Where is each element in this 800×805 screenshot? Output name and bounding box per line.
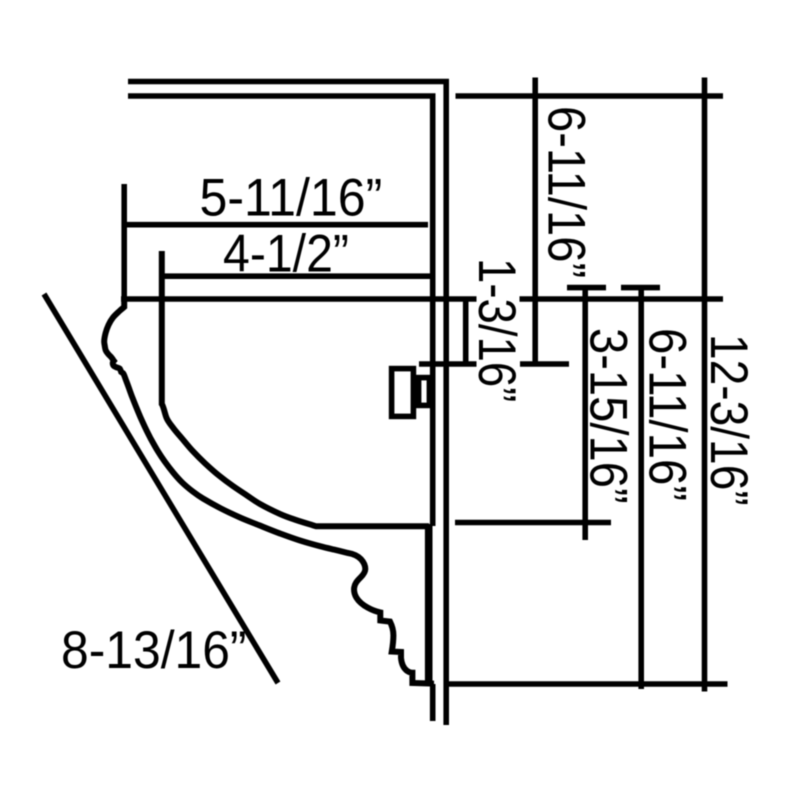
svg-text:6-11/16”: 6-11/16” [537, 106, 596, 278]
svg-text:6-11/16”: 6-11/16” [638, 328, 698, 501]
svg-text:4-1/2”: 4-1/2” [223, 223, 349, 283]
svg-text:12-3/16”: 12-3/16” [699, 334, 759, 506]
svg-text:5-11/16”: 5-11/16” [200, 167, 383, 227]
svg-text:3-15/16”: 3-15/16” [579, 328, 638, 504]
svg-text:1-3/16”: 1-3/16” [467, 258, 526, 402]
svg-text:8-13/16”: 8-13/16” [61, 620, 247, 680]
